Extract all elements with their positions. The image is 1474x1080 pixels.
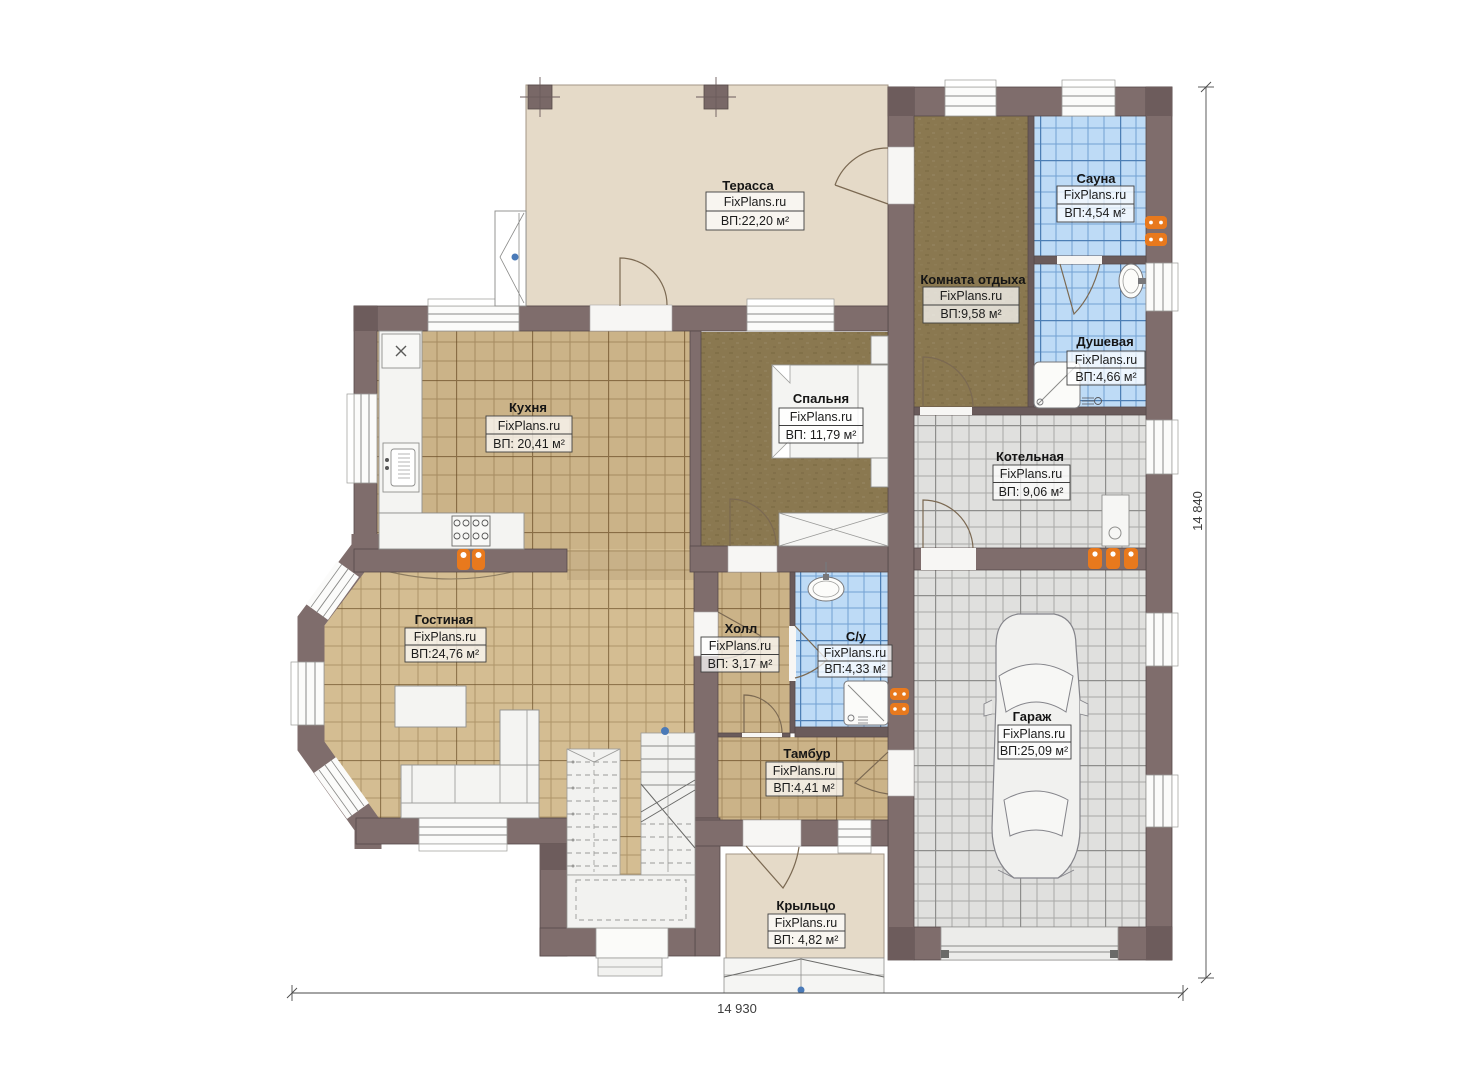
svg-text:FixPlans.ru: FixPlans.ru: [414, 630, 477, 644]
svg-text:ВП:24,76 м²: ВП:24,76 м²: [411, 647, 479, 661]
svg-text:14 840: 14 840: [1190, 491, 1205, 531]
svg-text:ВП:25,09 м²: ВП:25,09 м²: [1000, 744, 1068, 758]
svg-text:FixPlans.ru: FixPlans.ru: [724, 195, 787, 209]
svg-text:Терасса: Терасса: [722, 178, 774, 193]
svg-text:ВП: 20,41 м²: ВП: 20,41 м²: [493, 437, 565, 451]
svg-text:FixPlans.ru: FixPlans.ru: [709, 639, 772, 653]
svg-text:FixPlans.ru: FixPlans.ru: [790, 410, 853, 424]
svg-text:ВП:4,33 м²: ВП:4,33 м²: [824, 662, 885, 676]
svg-text:Гараж: Гараж: [1013, 709, 1053, 724]
svg-text:FixPlans.ru: FixPlans.ru: [775, 916, 838, 930]
svg-text:ВП:22,20 м²: ВП:22,20 м²: [721, 214, 789, 228]
svg-text:Спальня: Спальня: [793, 391, 849, 406]
svg-text:ВП: 3,17 м²: ВП: 3,17 м²: [708, 657, 773, 671]
svg-text:Комната отдыха: Комната отдыха: [920, 272, 1026, 287]
svg-text:14 930: 14 930: [717, 1001, 757, 1016]
svg-text:FixPlans.ru: FixPlans.ru: [940, 289, 1003, 303]
svg-text:Крыльцо: Крыльцо: [776, 898, 835, 913]
svg-text:Холл: Холл: [725, 621, 758, 636]
svg-text:Душевая: Душевая: [1076, 334, 1133, 349]
svg-text:ВП:4,54 м²: ВП:4,54 м²: [1064, 206, 1125, 220]
svg-text:FixPlans.ru: FixPlans.ru: [1064, 188, 1127, 202]
svg-text:Котельная: Котельная: [996, 449, 1064, 464]
svg-text:Тамбур: Тамбур: [783, 746, 830, 761]
svg-text:ВП:4,41 м²: ВП:4,41 м²: [773, 781, 834, 795]
svg-text:Сауна: Сауна: [1076, 171, 1116, 186]
svg-text:FixPlans.ru: FixPlans.ru: [1003, 727, 1066, 741]
svg-text:ВП: 11,79 м²: ВП: 11,79 м²: [786, 428, 857, 442]
svg-text:Гостиная: Гостиная: [415, 612, 474, 627]
svg-text:FixPlans.ru: FixPlans.ru: [773, 764, 836, 778]
svg-text:ВП:9,58 м²: ВП:9,58 м²: [940, 307, 1001, 321]
svg-text:ВП: 9,06 м²: ВП: 9,06 м²: [999, 485, 1064, 499]
svg-text:Кухня: Кухня: [509, 400, 547, 415]
svg-text:FixPlans.ru: FixPlans.ru: [1075, 353, 1138, 367]
svg-text:ВП:4,66 м²: ВП:4,66 м²: [1075, 370, 1136, 384]
svg-text:FixPlans.ru: FixPlans.ru: [498, 419, 561, 433]
svg-text:FixPlans.ru: FixPlans.ru: [824, 646, 887, 660]
svg-text:С/у: С/у: [846, 629, 867, 644]
svg-text:FixPlans.ru: FixPlans.ru: [1000, 467, 1063, 481]
svg-text:ВП: 4,82 м²: ВП: 4,82 м²: [774, 933, 839, 947]
